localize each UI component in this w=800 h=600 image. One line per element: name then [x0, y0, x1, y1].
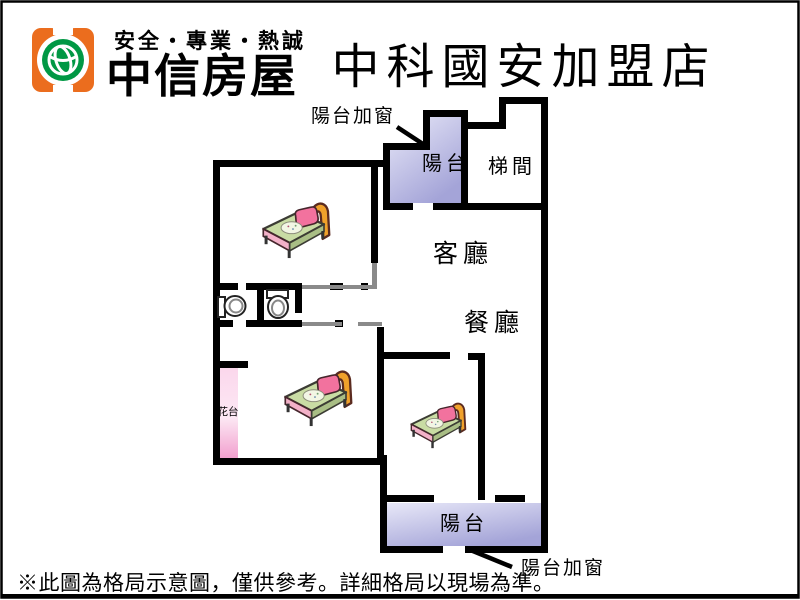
label-dining-room: 餐廳 [464, 308, 524, 337]
footer-disclaimer: ※此圖為格局示意圖，僅供參考。詳細格局以現場為準。 [17, 571, 555, 595]
bed-icon [263, 204, 329, 258]
brand-logo-icon [32, 28, 94, 92]
store-title: 中科國安加盟店 [331, 39, 716, 95]
brand-name: 中信房屋 [106, 49, 298, 103]
label-stairwell: 梯間 [488, 154, 536, 178]
floorplan-page: 安全・專業・熱誠 中信房屋 中科國安加盟店 [0, 0, 800, 600]
toilet-icon [218, 296, 246, 317]
label-balcony-bottom: 陽台 [440, 511, 488, 535]
toilet-icon [267, 290, 288, 318]
label-balcony-window-top: 陽台加窗 [311, 105, 395, 127]
bed-icon [285, 372, 351, 426]
open-walls [302, 263, 382, 326]
label-living-room: 客廳 [433, 239, 493, 268]
floorplan-drawing: 陽台加窗 陽台 梯間 客廳 餐廳 花台 陽台 陽台加窗 [213, 97, 605, 579]
bed-icon [411, 404, 465, 449]
label-balcony-top: 陽台 [422, 151, 470, 175]
floorplan-canvas: 安全・專業・熱誠 中信房屋 中科國安加盟店 [0, 0, 800, 600]
label-flower-stand: 花台 [218, 405, 239, 418]
